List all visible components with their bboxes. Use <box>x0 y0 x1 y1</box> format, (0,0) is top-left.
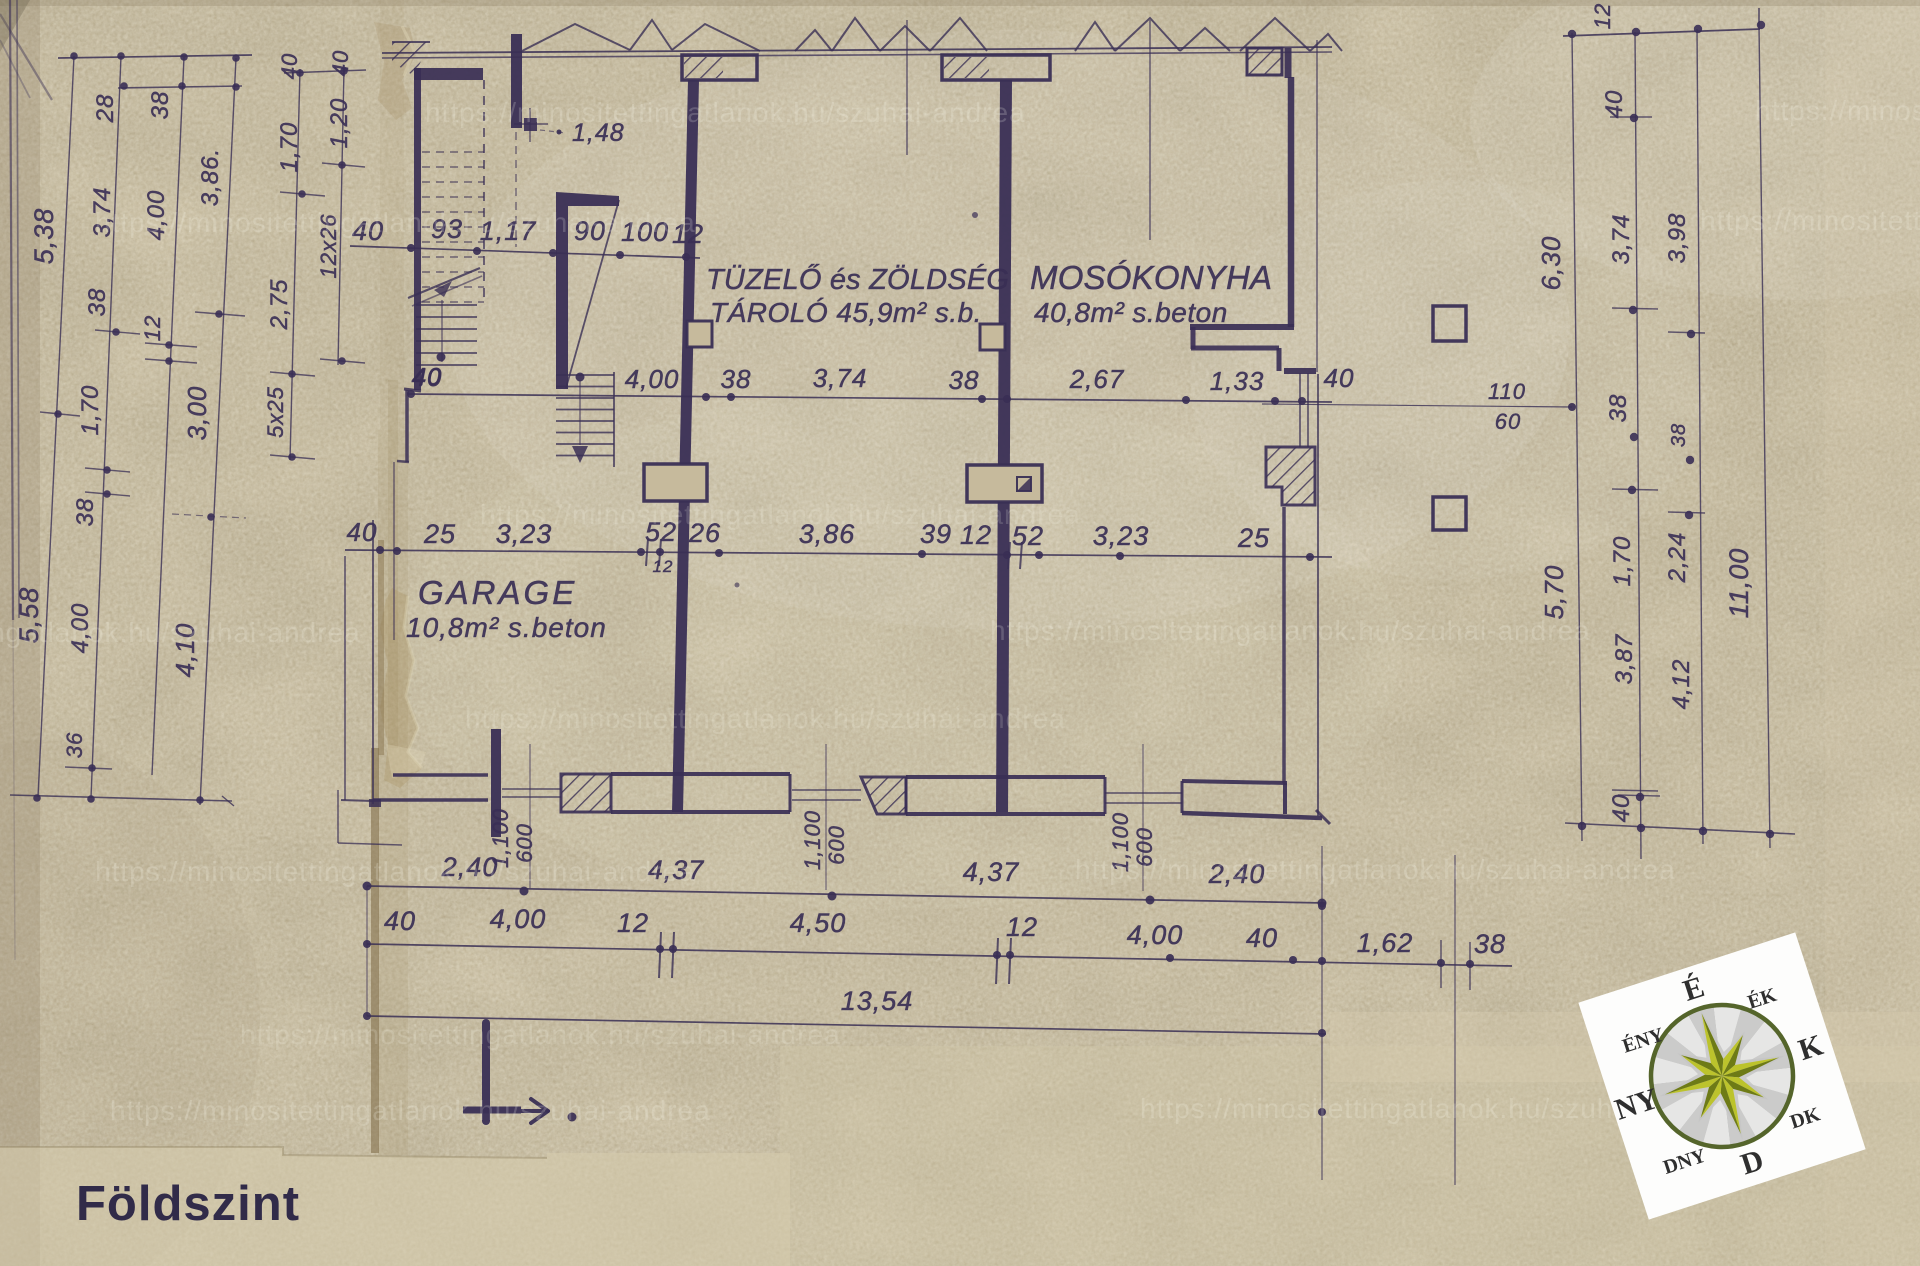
svg-text:2,24: 2,24 <box>1664 532 1691 584</box>
svg-text:110: 110 <box>1488 379 1526 404</box>
svg-text:https://minositettingatlanok.h: https://minositettingatlanok.hu/szuhai-a… <box>425 97 1026 128</box>
svg-text:10,8m² s.beton: 10,8m² s.beton <box>406 612 607 643</box>
svg-text:40: 40 <box>328 50 353 76</box>
svg-text:40: 40 <box>277 53 302 79</box>
svg-text:https://minositettingatlanok.h: https://minositettingatlanok.hu/szuhai-a… <box>95 856 696 887</box>
svg-text:40: 40 <box>384 906 416 936</box>
svg-text:38: 38 <box>949 365 980 395</box>
svg-text:MOSÓKONYHA: MOSÓKONYHA <box>1030 259 1272 296</box>
svg-text:1,100: 1,100 <box>800 810 825 870</box>
svg-text:40: 40 <box>1246 923 1278 953</box>
svg-text:3,87: 3,87 <box>1611 633 1638 684</box>
svg-text:38: 38 <box>147 91 174 120</box>
svg-text:3,86.: 3,86. <box>197 148 224 206</box>
svg-text:38: 38 <box>1605 394 1632 423</box>
svg-text:38: 38 <box>1668 423 1690 447</box>
svg-text:3,74: 3,74 <box>1608 214 1635 265</box>
svg-text:1,33: 1,33 <box>1210 366 1265 396</box>
svg-text:12: 12 <box>140 315 165 341</box>
svg-text:1,20: 1,20 <box>326 98 353 149</box>
svg-text:4,50: 4,50 <box>790 908 847 938</box>
svg-text:40,8m² s.beton: 40,8m² s.beton <box>1034 297 1228 328</box>
svg-text:12: 12 <box>1006 912 1038 942</box>
svg-text:https://minositettingatlanok.h: https://minositettingatlanok.hu/szuhai-a… <box>465 703 1066 734</box>
svg-text:40: 40 <box>1608 794 1635 823</box>
svg-text:38: 38 <box>721 364 752 394</box>
svg-text:5,70: 5,70 <box>1539 565 1569 620</box>
svg-text:1,62: 1,62 <box>1357 928 1414 958</box>
svg-text:13,54: 13,54 <box>841 986 914 1016</box>
svg-text:38: 38 <box>72 498 99 527</box>
svg-text:4,12: 4,12 <box>1668 659 1695 710</box>
svg-text:40: 40 <box>412 362 443 392</box>
svg-text:60: 60 <box>1495 409 1521 434</box>
svg-text:11,00: 11,00 <box>1724 548 1754 619</box>
svg-text:2,67: 2,67 <box>1069 364 1125 394</box>
svg-text:https://minositettingatlanok.h: https://minositettingatlanok.hu/szuhai-a… <box>1755 95 1920 126</box>
svg-text:4,00: 4,00 <box>625 364 680 394</box>
svg-text:https://minositettingatlanok.h: https://minositettingatlanok.hu/szuhai-a… <box>1700 205 1920 236</box>
svg-text:600: 600 <box>824 825 849 865</box>
svg-text:https://minositettingatlanok.h: https://minositettingatlanok.hu/szuhai-a… <box>480 499 1081 530</box>
svg-text:36: 36 <box>62 732 87 758</box>
svg-text:GARAGE: GARAGE <box>418 574 577 611</box>
svg-text:https://minositettingatlanok.h: https://minositettingatlanok.hu/szuhai-a… <box>1075 854 1676 885</box>
svg-text:1,70: 1,70 <box>276 122 303 173</box>
svg-text:2,75: 2,75 <box>266 279 293 331</box>
svg-text:TÁROLÓ 45,9m² s.b.: TÁROLÓ 45,9m² s.b. <box>710 297 982 328</box>
svg-text:3,23: 3,23 <box>1093 521 1150 551</box>
svg-text:12: 12 <box>1590 3 1615 29</box>
svg-text:3,00: 3,00 <box>182 386 212 441</box>
svg-text:https://minositettingatlanok.h: https://minositettingatlanok.hu/szuhai-a… <box>990 615 1591 646</box>
svg-text:5x25: 5x25 <box>263 386 288 438</box>
svg-text:4,37: 4,37 <box>963 857 1020 887</box>
svg-text:40: 40 <box>1601 90 1628 119</box>
svg-text:3,74: 3,74 <box>813 363 868 393</box>
svg-text:5,38: 5,38 <box>29 208 59 265</box>
svg-text:12: 12 <box>617 908 649 938</box>
svg-text:https://minositettingatlanok.h: https://minositettingatlanok.hu/szuhai-a… <box>110 1095 711 1126</box>
svg-text:38: 38 <box>1474 929 1506 959</box>
svg-text:4,00: 4,00 <box>1127 920 1184 950</box>
svg-text:40: 40 <box>347 517 378 547</box>
svg-text:25: 25 <box>1237 523 1270 553</box>
svg-text:1,70: 1,70 <box>77 385 104 436</box>
svg-text:Földszint: Földszint <box>76 1177 300 1231</box>
svg-text:25: 25 <box>423 519 456 549</box>
svg-text:1,70: 1,70 <box>1609 536 1636 587</box>
svg-text:12: 12 <box>653 557 674 576</box>
svg-text:28: 28 <box>92 94 119 124</box>
svg-text:TÜZELŐ és ZÖLDSÉG: TÜZELŐ és ZÖLDSÉG <box>706 263 1009 296</box>
svg-text:38: 38 <box>84 288 111 317</box>
svg-text:https://minositettingatlanok.h: https://minositettingatlanok.hu/szuhai-a… <box>95 207 696 238</box>
svg-text:https://minositettingatlanok.h: https://minositettingatlanok.hu/szuhai-a… <box>0 617 361 648</box>
svg-text:40: 40 <box>1324 363 1355 393</box>
svg-text:6,30: 6,30 <box>1536 236 1566 291</box>
svg-text:https://minositettingatlanok.h: https://minositettingatlanok.hu/szuhai-a… <box>240 1019 841 1050</box>
svg-text:3,98: 3,98 <box>1664 213 1691 264</box>
svg-text:4,00: 4,00 <box>490 904 547 934</box>
